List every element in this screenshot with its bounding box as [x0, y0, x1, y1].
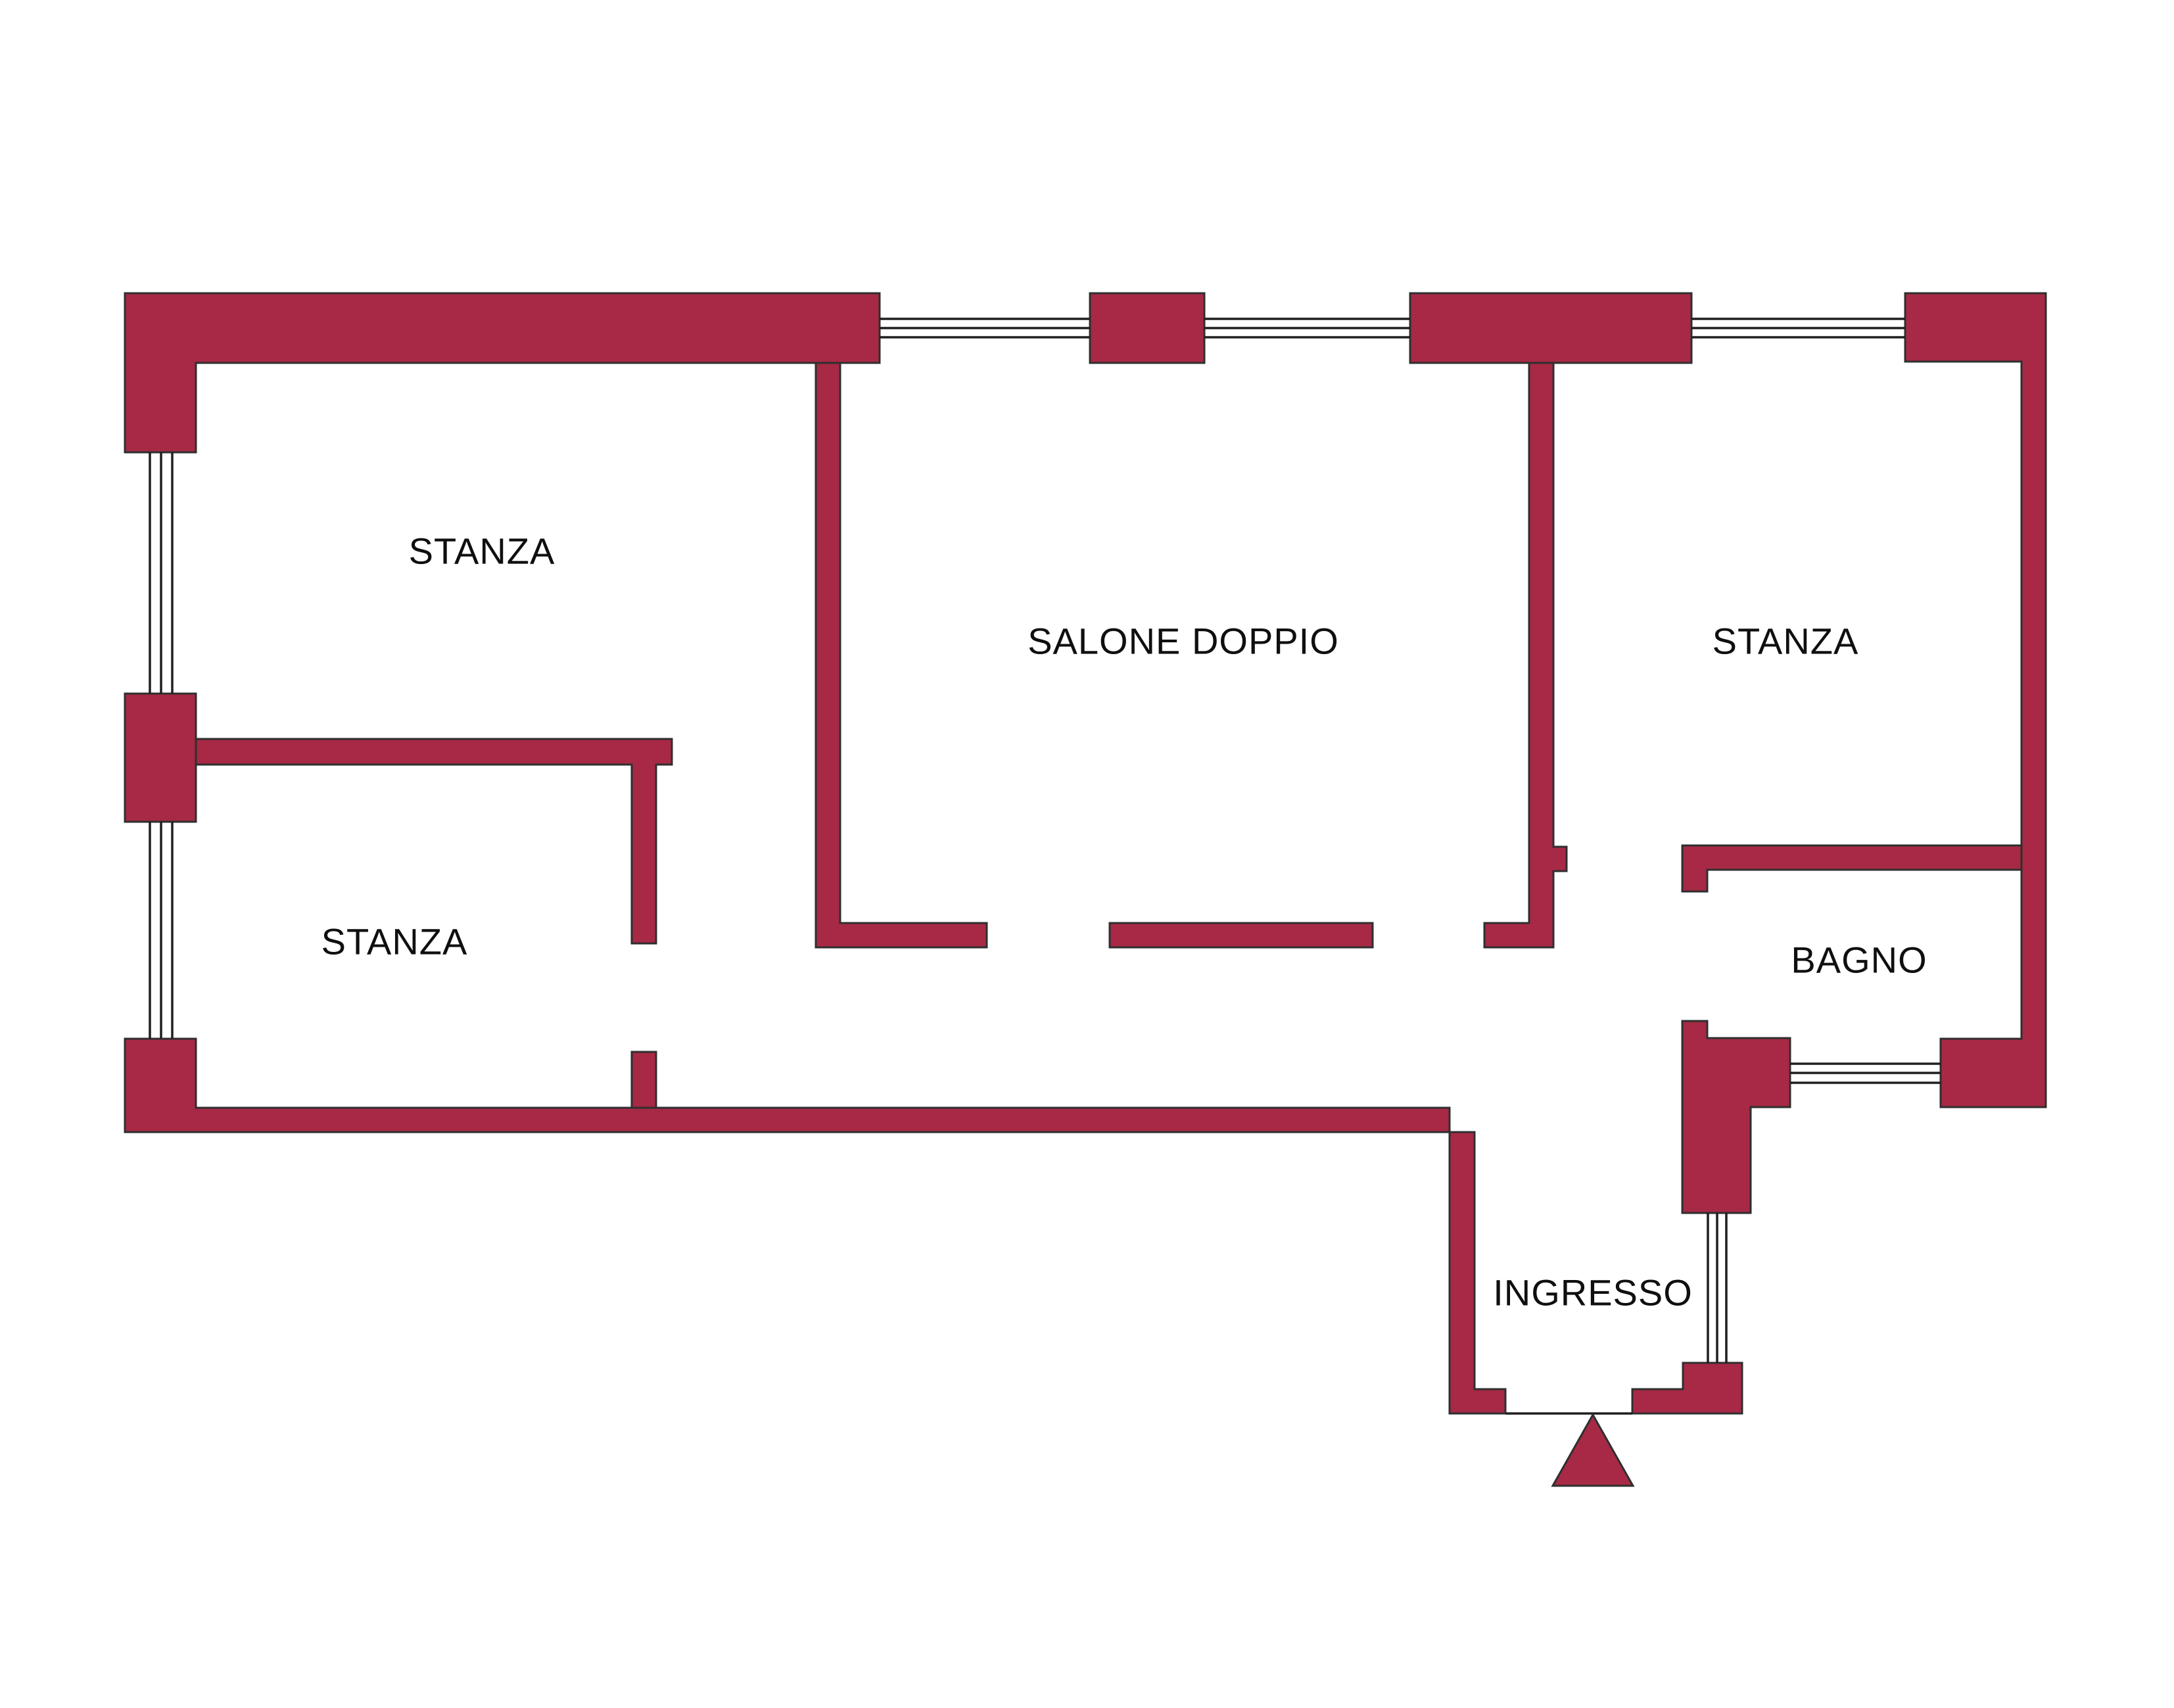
wall-salone-left [816, 363, 987, 947]
window-symbol-ingresso [1708, 1213, 1726, 1363]
entrance-arrow-icon [1553, 1415, 1633, 1486]
room-label-stanza-right: STANZA [1713, 621, 1859, 662]
room-label-ingresso: INGRESSO [1493, 1272, 1693, 1314]
window-symbol-top-2 [1204, 319, 1410, 337]
room-label-salone-doppio: SALONE DOPPIO [1028, 621, 1339, 662]
wall-salone-right [1484, 363, 1567, 947]
wall-stanza-door-stub [632, 1052, 656, 1108]
window-symbol-top-1 [880, 319, 1090, 337]
window-symbol-top-3 [1691, 319, 1905, 337]
room-label-stanza-bottom-left: STANZA [321, 921, 468, 962]
wall-top-pillar-right [1410, 293, 1691, 363]
wall-bottom-and-ingresso-left [125, 1039, 1505, 1413]
floor-plan-canvas: STANZA SALONE DOPPIO STANZA STANZA BAGNO… [0, 0, 2174, 1708]
window-symbol-bagno [1790, 1064, 1941, 1083]
entrance-group [1505, 1413, 1633, 1486]
window-symbol-left-2 [150, 822, 172, 1039]
windows-layer [150, 319, 1941, 1363]
wall-bagno-bottom-left [1682, 1021, 1790, 1213]
room-label-stanza-top-left: STANZA [409, 531, 555, 572]
window-symbol-left-1 [150, 452, 172, 694]
wall-bagno-top [1682, 845, 2021, 891]
wall-right-exterior [1905, 293, 2046, 1107]
wall-salone-bottom-middle [1110, 923, 1373, 947]
wall-top-left-l [125, 293, 880, 452]
room-label-bagno: BAGNO [1791, 939, 1927, 981]
walls-layer [125, 293, 2046, 1413]
wall-stanza-divider [196, 739, 672, 943]
wall-ingresso-right-jamb [1632, 1363, 1742, 1413]
wall-left-middle-block [125, 694, 196, 822]
floorplan-page: STANZA SALONE DOPPIO STANZA STANZA BAGNO… [0, 0, 2174, 1708]
wall-top-pillar-salone [1090, 293, 1204, 363]
